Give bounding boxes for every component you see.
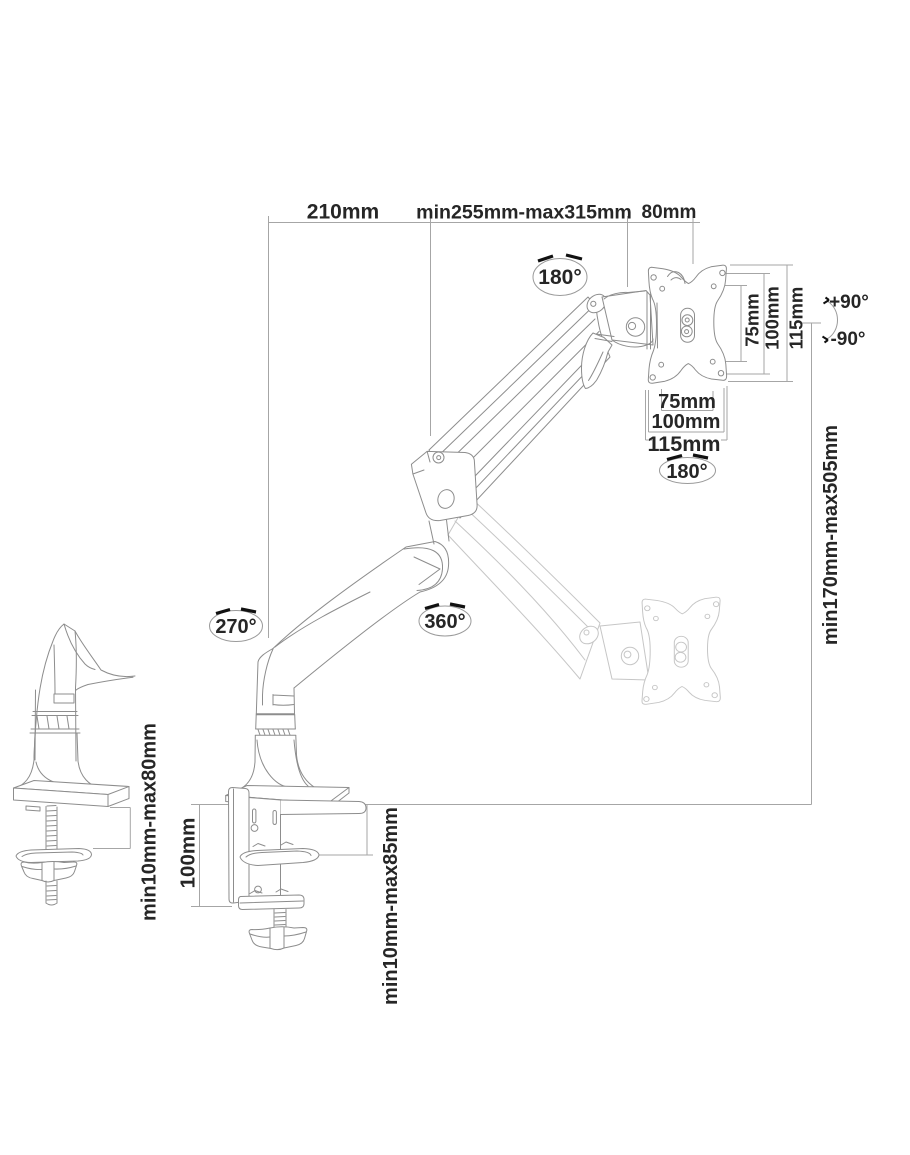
- svg-text:360°: 360°: [424, 611, 465, 633]
- svg-text:115mm: 115mm: [786, 287, 807, 350]
- svg-text:80mm: 80mm: [642, 202, 697, 223]
- svg-text:100mm: 100mm: [652, 411, 721, 433]
- svg-text:180°: 180°: [538, 266, 581, 289]
- svg-text:115mm: 115mm: [648, 432, 721, 456]
- svg-text:100mm: 100mm: [762, 286, 783, 350]
- svg-text:180°: 180°: [666, 461, 707, 483]
- svg-text:min10mm-max80mm: min10mm-max80mm: [139, 723, 161, 921]
- svg-text:min10mm-max85mm: min10mm-max85mm: [380, 807, 402, 1005]
- svg-text:100mm: 100mm: [177, 818, 200, 889]
- svg-text:210mm: 210mm: [307, 201, 379, 224]
- svg-text:min170mm-max505mm: min170mm-max505mm: [820, 425, 842, 645]
- svg-text:270°: 270°: [215, 616, 256, 638]
- svg-text:min255mm-max315mm: min255mm-max315mm: [416, 202, 632, 224]
- svg-text:75mm: 75mm: [742, 293, 763, 346]
- svg-text:75mm: 75mm: [658, 391, 716, 413]
- svg-text:-90°: -90°: [830, 329, 865, 350]
